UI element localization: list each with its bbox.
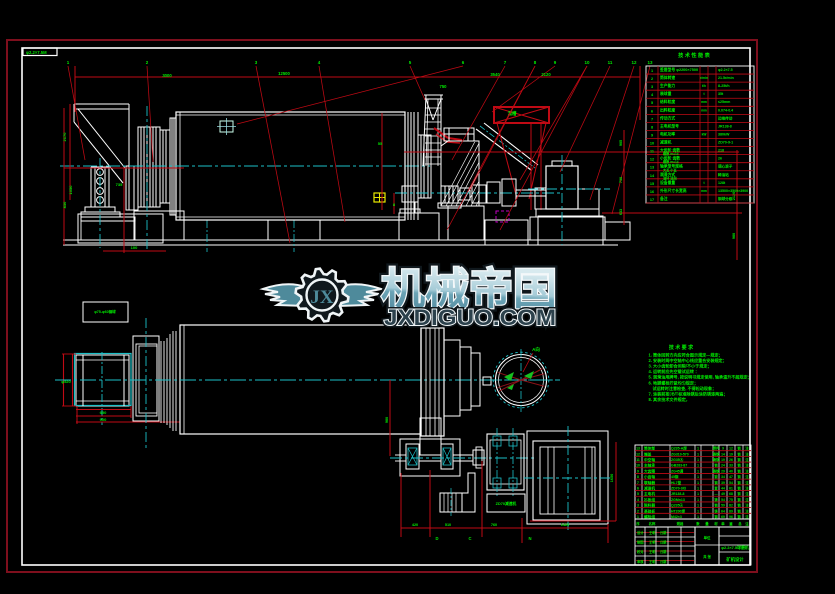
- svg-text:M42×3: M42×3: [671, 515, 682, 519]
- svg-text:φ2.2×7.5: φ2.2×7.5: [718, 68, 733, 72]
- svg-text:29: 29: [721, 469, 725, 473]
- svg-text:1: 1: [697, 492, 699, 496]
- svg-text:3540: 3540: [490, 72, 500, 77]
- svg-text:2120: 2120: [732, 192, 736, 200]
- svg-text:减速机: 减速机: [659, 140, 672, 145]
- svg-text:材: 材: [713, 521, 718, 526]
- svg-text:Q235Ⓐ: Q235Ⓐ: [671, 503, 684, 508]
- svg-text:Q235-A焊: Q235-A焊: [671, 446, 687, 451]
- svg-text:650: 650: [100, 410, 107, 415]
- svg-text:D: D: [435, 536, 438, 541]
- svg-text:焊件: 焊件: [712, 446, 720, 451]
- svg-text:1: 1: [697, 509, 699, 513]
- svg-text:26: 26: [718, 157, 722, 161]
- svg-text:54: 54: [729, 481, 733, 485]
- svg-text:1: 1: [697, 475, 699, 479]
- svg-text:ZG45调: ZG45调: [671, 468, 684, 473]
- svg-text:给料粒度: 给料粒度: [660, 99, 675, 104]
- svg-text:大齿圈: 大齿圈: [644, 468, 655, 473]
- svg-text:1: 1: [697, 515, 699, 519]
- svg-text:日期: 日期: [660, 559, 667, 564]
- svg-text:签唇型号 φ2200×7500: 签唇型号 φ2200×7500: [659, 67, 698, 72]
- svg-text:1: 1: [651, 69, 653, 73]
- svg-text:13: 13: [636, 447, 640, 451]
- svg-text:11: 11: [608, 60, 613, 65]
- svg-text:100: 100: [131, 245, 138, 250]
- svg-text:r/min: r/min: [700, 76, 708, 80]
- svg-text:760: 760: [491, 523, 497, 527]
- svg-text:螺栓组: 螺栓组: [644, 514, 655, 519]
- svg-text:12500: 12500: [278, 71, 290, 76]
- svg-text:技 术 性 能 表: 技 术 性 能 表: [678, 51, 711, 59]
- svg-text:5: 5: [637, 492, 639, 496]
- svg-text:日期: 日期: [660, 540, 667, 545]
- svg-text:JX: JX: [310, 287, 334, 308]
- svg-text:1: 1: [697, 452, 699, 456]
- svg-text:mm: mm: [701, 108, 707, 112]
- svg-text:75: 75: [729, 498, 733, 502]
- svg-text:设备重量: 设备重量: [660, 180, 675, 185]
- svg-text:4. 运转前应先空载试运转 ：: 4. 运转前应先空载试运转 ：: [649, 368, 700, 374]
- svg-text:12: 12: [631, 60, 637, 65]
- svg-text:油环 油泡: 油环 油泡: [663, 175, 677, 180]
- svg-text:9: 9: [637, 469, 639, 473]
- svg-text:φ2.2×7.5球磨机: φ2.2×7.5球磨机: [721, 545, 749, 550]
- svg-text:1: 1: [697, 469, 699, 473]
- svg-text:1: 1: [697, 487, 699, 491]
- svg-text:模数 m=14: 模数 m=14: [663, 151, 679, 156]
- svg-text:名称: 名称: [649, 521, 656, 526]
- svg-text:1: 1: [697, 464, 699, 468]
- svg-text:1: 1: [697, 447, 699, 451]
- svg-text:0.074-0.4: 0.074-0.4: [718, 108, 733, 112]
- svg-text:980: 980: [385, 417, 389, 423]
- svg-text:7. 涂装前按JB/T标准除锈后涂防锈漆两遍；: 7. 涂装前按JB/T标准除锈后涂防锈漆两遍；: [649, 390, 728, 396]
- svg-text:54: 54: [721, 498, 725, 502]
- svg-text:≤25mm: ≤25mm: [718, 100, 730, 104]
- svg-text:JXDIGUO.COM: JXDIGUO.COM: [384, 305, 556, 330]
- svg-text:2. 安装时两中空轴中心线应重合安装规定；: 2. 安装时两中空轴中心线应重合安装规定；: [649, 357, 727, 363]
- svg-text:HL7型: HL7型: [671, 480, 682, 485]
- svg-text:试运转时注意检查, 不得松动现象；: 试运转时注意检查, 不得松动现象；: [653, 385, 717, 391]
- svg-text:主电机型号: 主电机型号: [660, 123, 679, 128]
- svg-text:15: 15: [650, 182, 654, 186]
- svg-text:218: 218: [718, 149, 724, 153]
- svg-text:6: 6: [637, 487, 639, 491]
- svg-text:日期: 日期: [660, 530, 667, 535]
- svg-text:905: 905: [619, 140, 623, 146]
- svg-text:89: 89: [729, 509, 733, 513]
- svg-text:大瓦 小瓦: 大瓦 小瓦: [663, 167, 677, 172]
- svg-text:王明: 王明: [649, 530, 656, 535]
- svg-text:11: 11: [636, 458, 640, 462]
- svg-text:C: C: [468, 536, 471, 541]
- svg-text:1: 1: [697, 458, 699, 462]
- svg-text:1: 1: [697, 504, 699, 508]
- svg-text:64: 64: [721, 509, 725, 513]
- svg-text:21.5r/min: 21.5r/min: [718, 76, 734, 80]
- svg-text:12: 12: [729, 447, 733, 451]
- svg-text:主轴承: 主轴承: [644, 463, 655, 468]
- svg-text:8. 其余技术文件规定，: 8. 其余技术文件规定，: [649, 396, 690, 402]
- svg-text:730: 730: [619, 177, 623, 183]
- svg-text:2170: 2170: [62, 132, 67, 142]
- svg-text:筒体部: 筒体部: [644, 446, 655, 451]
- svg-text:3000: 3000: [162, 73, 172, 78]
- svg-text:16: 16: [650, 190, 654, 194]
- svg-text:61: 61: [729, 487, 733, 491]
- svg-text:8: 8: [651, 125, 653, 129]
- svg-text:1420: 1420: [561, 523, 569, 527]
- svg-text:13: 13: [647, 60, 653, 65]
- svg-text:14: 14: [721, 452, 725, 456]
- svg-text:基础板: 基础板: [643, 508, 655, 513]
- svg-text:kW: kW: [702, 132, 707, 136]
- svg-text:技 术 要 求: 技 术 要 求: [669, 344, 694, 351]
- svg-text:34: 34: [721, 475, 725, 479]
- svg-text:13: 13: [650, 166, 654, 170]
- svg-text:9: 9: [651, 133, 653, 137]
- svg-text:mm: mm: [701, 100, 707, 104]
- svg-text:1050: 1050: [68, 185, 73, 195]
- svg-text:小齿轴: 小齿轴: [643, 474, 655, 479]
- svg-text:10: 10: [636, 464, 640, 468]
- svg-text:审核: 审核: [637, 559, 644, 564]
- svg-text:10: 10: [584, 60, 590, 65]
- svg-text:17: 17: [650, 198, 654, 202]
- svg-text:铸钢: 铸钢: [713, 451, 720, 456]
- svg-text:1. 筒体回转方向应符合图示规定—规定；: 1. 筒体回转方向应符合图示规定—规定；: [649, 352, 723, 358]
- svg-text:1650: 1650: [610, 474, 614, 482]
- svg-text:规格: 规格: [676, 521, 684, 526]
- svg-text:ZG310-570: ZG310-570: [671, 452, 689, 456]
- svg-text:校对: 校对: [637, 549, 644, 554]
- svg-text:t/h: t/h: [702, 84, 706, 88]
- svg-text:设计: 设计: [637, 530, 644, 535]
- svg-text:A向: A向: [532, 346, 540, 353]
- svg-text:3: 3: [637, 504, 639, 508]
- svg-text:模数 m=14: 模数 m=14: [663, 159, 679, 164]
- svg-text:中空轴: 中空轴: [644, 457, 655, 462]
- svg-text:减速机: 减速机: [643, 486, 655, 491]
- svg-text:8-25t/h: 8-25t/h: [718, 84, 730, 88]
- svg-text:1: 1: [697, 481, 699, 485]
- svg-text:传动方式: 传动方式: [659, 115, 675, 120]
- svg-text:9: 9: [722, 447, 724, 451]
- svg-text:GB283-87: GB283-87: [671, 464, 687, 468]
- svg-text:39: 39: [721, 481, 725, 485]
- svg-text:衫板组: 衫板组: [643, 497, 655, 502]
- svg-text:端盖: 端盖: [644, 451, 652, 456]
- svg-text:40: 40: [729, 469, 733, 473]
- svg-text:N: N: [528, 536, 531, 541]
- svg-text:5: 5: [651, 101, 653, 105]
- svg-text:日期: 日期: [660, 549, 667, 554]
- svg-text:633: 633: [619, 209, 623, 215]
- svg-text:35t: 35t: [718, 92, 724, 96]
- svg-text:6: 6: [651, 109, 653, 113]
- svg-text:ZG35Ⓐ: ZG35Ⓐ: [671, 457, 684, 462]
- svg-text:59: 59: [721, 504, 725, 508]
- svg-text:1: 1: [637, 515, 639, 519]
- svg-text:数: 数: [695, 521, 700, 526]
- svg-text:3. 大小齿轮卸合间隙/不小于规定；: 3. 大小齿轮卸合间隙/不小于规定；: [649, 363, 712, 369]
- svg-text:33: 33: [729, 464, 733, 468]
- svg-text:49: 49: [721, 492, 725, 496]
- svg-text:750: 750: [440, 84, 448, 89]
- svg-text:7: 7: [637, 481, 639, 485]
- svg-text:12: 12: [636, 452, 640, 456]
- svg-text:380kW: 380kW: [718, 132, 730, 136]
- svg-text:26: 26: [729, 458, 733, 462]
- svg-text:980: 980: [732, 233, 736, 239]
- svg-text:44: 44: [721, 487, 725, 491]
- svg-text:稀油站: 稀油站: [718, 172, 729, 177]
- svg-text:制图: 制图: [637, 540, 644, 545]
- svg-text:筒体转速: 筒体转速: [659, 75, 675, 80]
- svg-text:69: 69: [721, 515, 725, 519]
- svg-text:矿机设计: 矿机设计: [726, 556, 744, 563]
- svg-text:电机功率: 电机功率: [660, 131, 675, 136]
- svg-text:ZGMn13: ZGMn13: [671, 498, 685, 502]
- svg-text:2120: 2120: [541, 72, 551, 77]
- svg-text:19: 19: [721, 458, 725, 462]
- svg-text:铸钢: 铸钢: [713, 468, 720, 473]
- svg-text:2: 2: [651, 77, 653, 81]
- svg-text:陈料器: 陈料器: [644, 503, 655, 508]
- svg-text:6. 地脚螺栓拧紧均匀规定；: 6. 地脚螺栓拧紧均匀规定；: [649, 379, 699, 385]
- svg-text:出料粒度: 出料粒度: [660, 107, 675, 112]
- svg-text:19: 19: [729, 452, 733, 456]
- svg-text:外形尺寸长宽高: 外形尺寸长宽高: [659, 188, 687, 193]
- svg-text:3: 3: [651, 85, 653, 89]
- svg-text:68: 68: [729, 492, 733, 496]
- svg-text:ZD70-9-1: ZD70-9-1: [718, 141, 733, 145]
- svg-text:830: 830: [62, 201, 67, 208]
- svg-text:10: 10: [650, 142, 654, 146]
- svg-text:φ2.2×7.5M: φ2.2×7.5M: [26, 50, 47, 55]
- svg-text:φ75-φ60钢球: φ75-φ60钢球: [94, 309, 116, 314]
- svg-text:联轴器: 联轴器: [644, 480, 655, 485]
- svg-text:HT200焊: HT200焊: [671, 508, 686, 513]
- svg-text:生产能力: 生产能力: [660, 83, 675, 88]
- svg-text:13500×3500×3900: 13500×3500×3900: [718, 189, 748, 193]
- svg-text:900: 900: [100, 417, 107, 422]
- svg-text:调心滚子: 调心滚子: [718, 164, 733, 169]
- svg-text:ZD70减速机: ZD70减速机: [496, 501, 517, 506]
- svg-text:47: 47: [729, 475, 733, 479]
- svg-text:套: 套: [713, 486, 718, 491]
- svg-text:JR138-8: JR138-8: [671, 492, 684, 496]
- svg-text:11: 11: [650, 150, 654, 154]
- svg-text:7: 7: [651, 117, 653, 121]
- svg-text:共 张: 共 张: [703, 554, 711, 559]
- svg-text:128t: 128t: [718, 181, 726, 185]
- svg-text:王明: 王明: [649, 549, 656, 554]
- svg-text:8: 8: [637, 475, 639, 479]
- svg-text:1: 1: [697, 498, 699, 502]
- svg-text:JR138-8: JR138-8: [718, 124, 732, 128]
- svg-text:主电机: 主电机: [644, 491, 655, 496]
- svg-text:24: 24: [721, 464, 725, 468]
- svg-text:mm: mm: [701, 189, 707, 193]
- svg-text:420: 420: [412, 523, 418, 527]
- svg-text:王明: 王明: [649, 559, 656, 564]
- svg-text:45钢: 45钢: [671, 474, 679, 479]
- svg-text:510: 510: [445, 523, 451, 527]
- svg-text:5. 润滑油用牌号, 按说明书规定使用, 轴承温升不超规定；: 5. 润滑油用牌号, 按说明书规定使用, 轴承温升不超规定；: [649, 374, 752, 380]
- svg-text:序: 序: [635, 521, 640, 526]
- svg-text:装球量: 装球量: [659, 91, 672, 96]
- svg-text:735: 735: [116, 182, 123, 187]
- svg-text:ZD70-9Ⅺ: ZD70-9Ⅺ: [671, 486, 687, 491]
- svg-text:单位: 单位: [704, 535, 711, 540]
- svg-text:82: 82: [729, 504, 733, 508]
- svg-text:12: 12: [650, 158, 654, 162]
- svg-text:钢球分级: 钢球分级: [718, 196, 733, 201]
- svg-text:王明: 王明: [649, 540, 656, 545]
- svg-text:铸钢: 铸钢: [713, 457, 720, 462]
- svg-text:55: 55: [378, 141, 383, 146]
- svg-text:4: 4: [637, 498, 639, 502]
- svg-text:96: 96: [729, 515, 733, 519]
- svg-text:2: 2: [637, 509, 639, 513]
- svg-text:备注: 备注: [659, 196, 668, 201]
- svg-text:边缘传动: 边缘传动: [717, 115, 733, 120]
